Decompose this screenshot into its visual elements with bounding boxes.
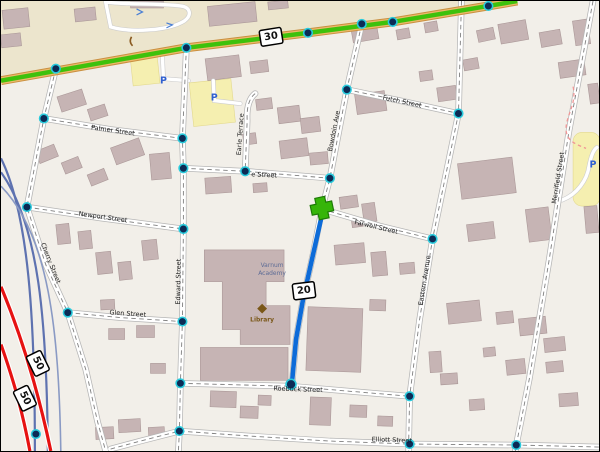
street-label-elliott: Elliott Street <box>372 435 413 444</box>
map-window: 30 20 50 50 Palmer Street e Street Earle… <box>0 0 600 452</box>
poi-varnum-academy-line2: Academy <box>258 270 286 277</box>
poi-library-label: Library <box>250 317 274 324</box>
parking-icon: P <box>211 93 218 104</box>
map-node-marker[interactable] <box>182 44 191 53</box>
shield-route-20: 20 <box>292 281 316 299</box>
map-node-marker[interactable] <box>512 441 521 450</box>
map-node-marker[interactable] <box>428 235 437 244</box>
map-node-marker[interactable] <box>178 134 187 143</box>
map-node-marker[interactable] <box>175 427 184 436</box>
map-node-marker[interactable] <box>484 2 493 11</box>
map-node-marker[interactable] <box>343 85 352 94</box>
map-node-marker[interactable] <box>176 379 185 388</box>
map-node-marker[interactable] <box>405 392 414 401</box>
street-label-edward: Edward Street <box>174 258 183 304</box>
shield-route-30: 30 <box>259 27 283 46</box>
map-node-marker[interactable] <box>454 109 463 118</box>
svg-text:20: 20 <box>296 284 311 297</box>
map-node-marker[interactable] <box>52 64 61 73</box>
map-node-marker[interactable] <box>23 203 32 212</box>
map-node-marker[interactable] <box>326 174 335 183</box>
parking-icon: P <box>590 159 597 170</box>
map-node-marker[interactable] <box>178 317 187 326</box>
map-node-marker[interactable] <box>63 308 72 317</box>
map-node-marker[interactable] <box>179 225 188 234</box>
poi-varnum-academy-line1: Varnum <box>261 262 284 269</box>
map-node-marker[interactable] <box>358 20 367 29</box>
map-node-marker[interactable] <box>304 29 313 38</box>
map-node-marker[interactable] <box>388 18 397 27</box>
map-node-marker[interactable] <box>241 167 250 176</box>
map-canvas[interactable]: 30 20 50 50 Palmer Street e Street Earle… <box>1 1 599 451</box>
map-node-marker[interactable] <box>32 430 41 439</box>
parking-icon: P <box>160 76 167 87</box>
map-node-marker[interactable] <box>40 114 49 123</box>
street-label-e-street: e Street <box>251 170 278 179</box>
map-node-marker[interactable] <box>179 164 188 173</box>
svg-text:30: 30 <box>263 30 278 43</box>
